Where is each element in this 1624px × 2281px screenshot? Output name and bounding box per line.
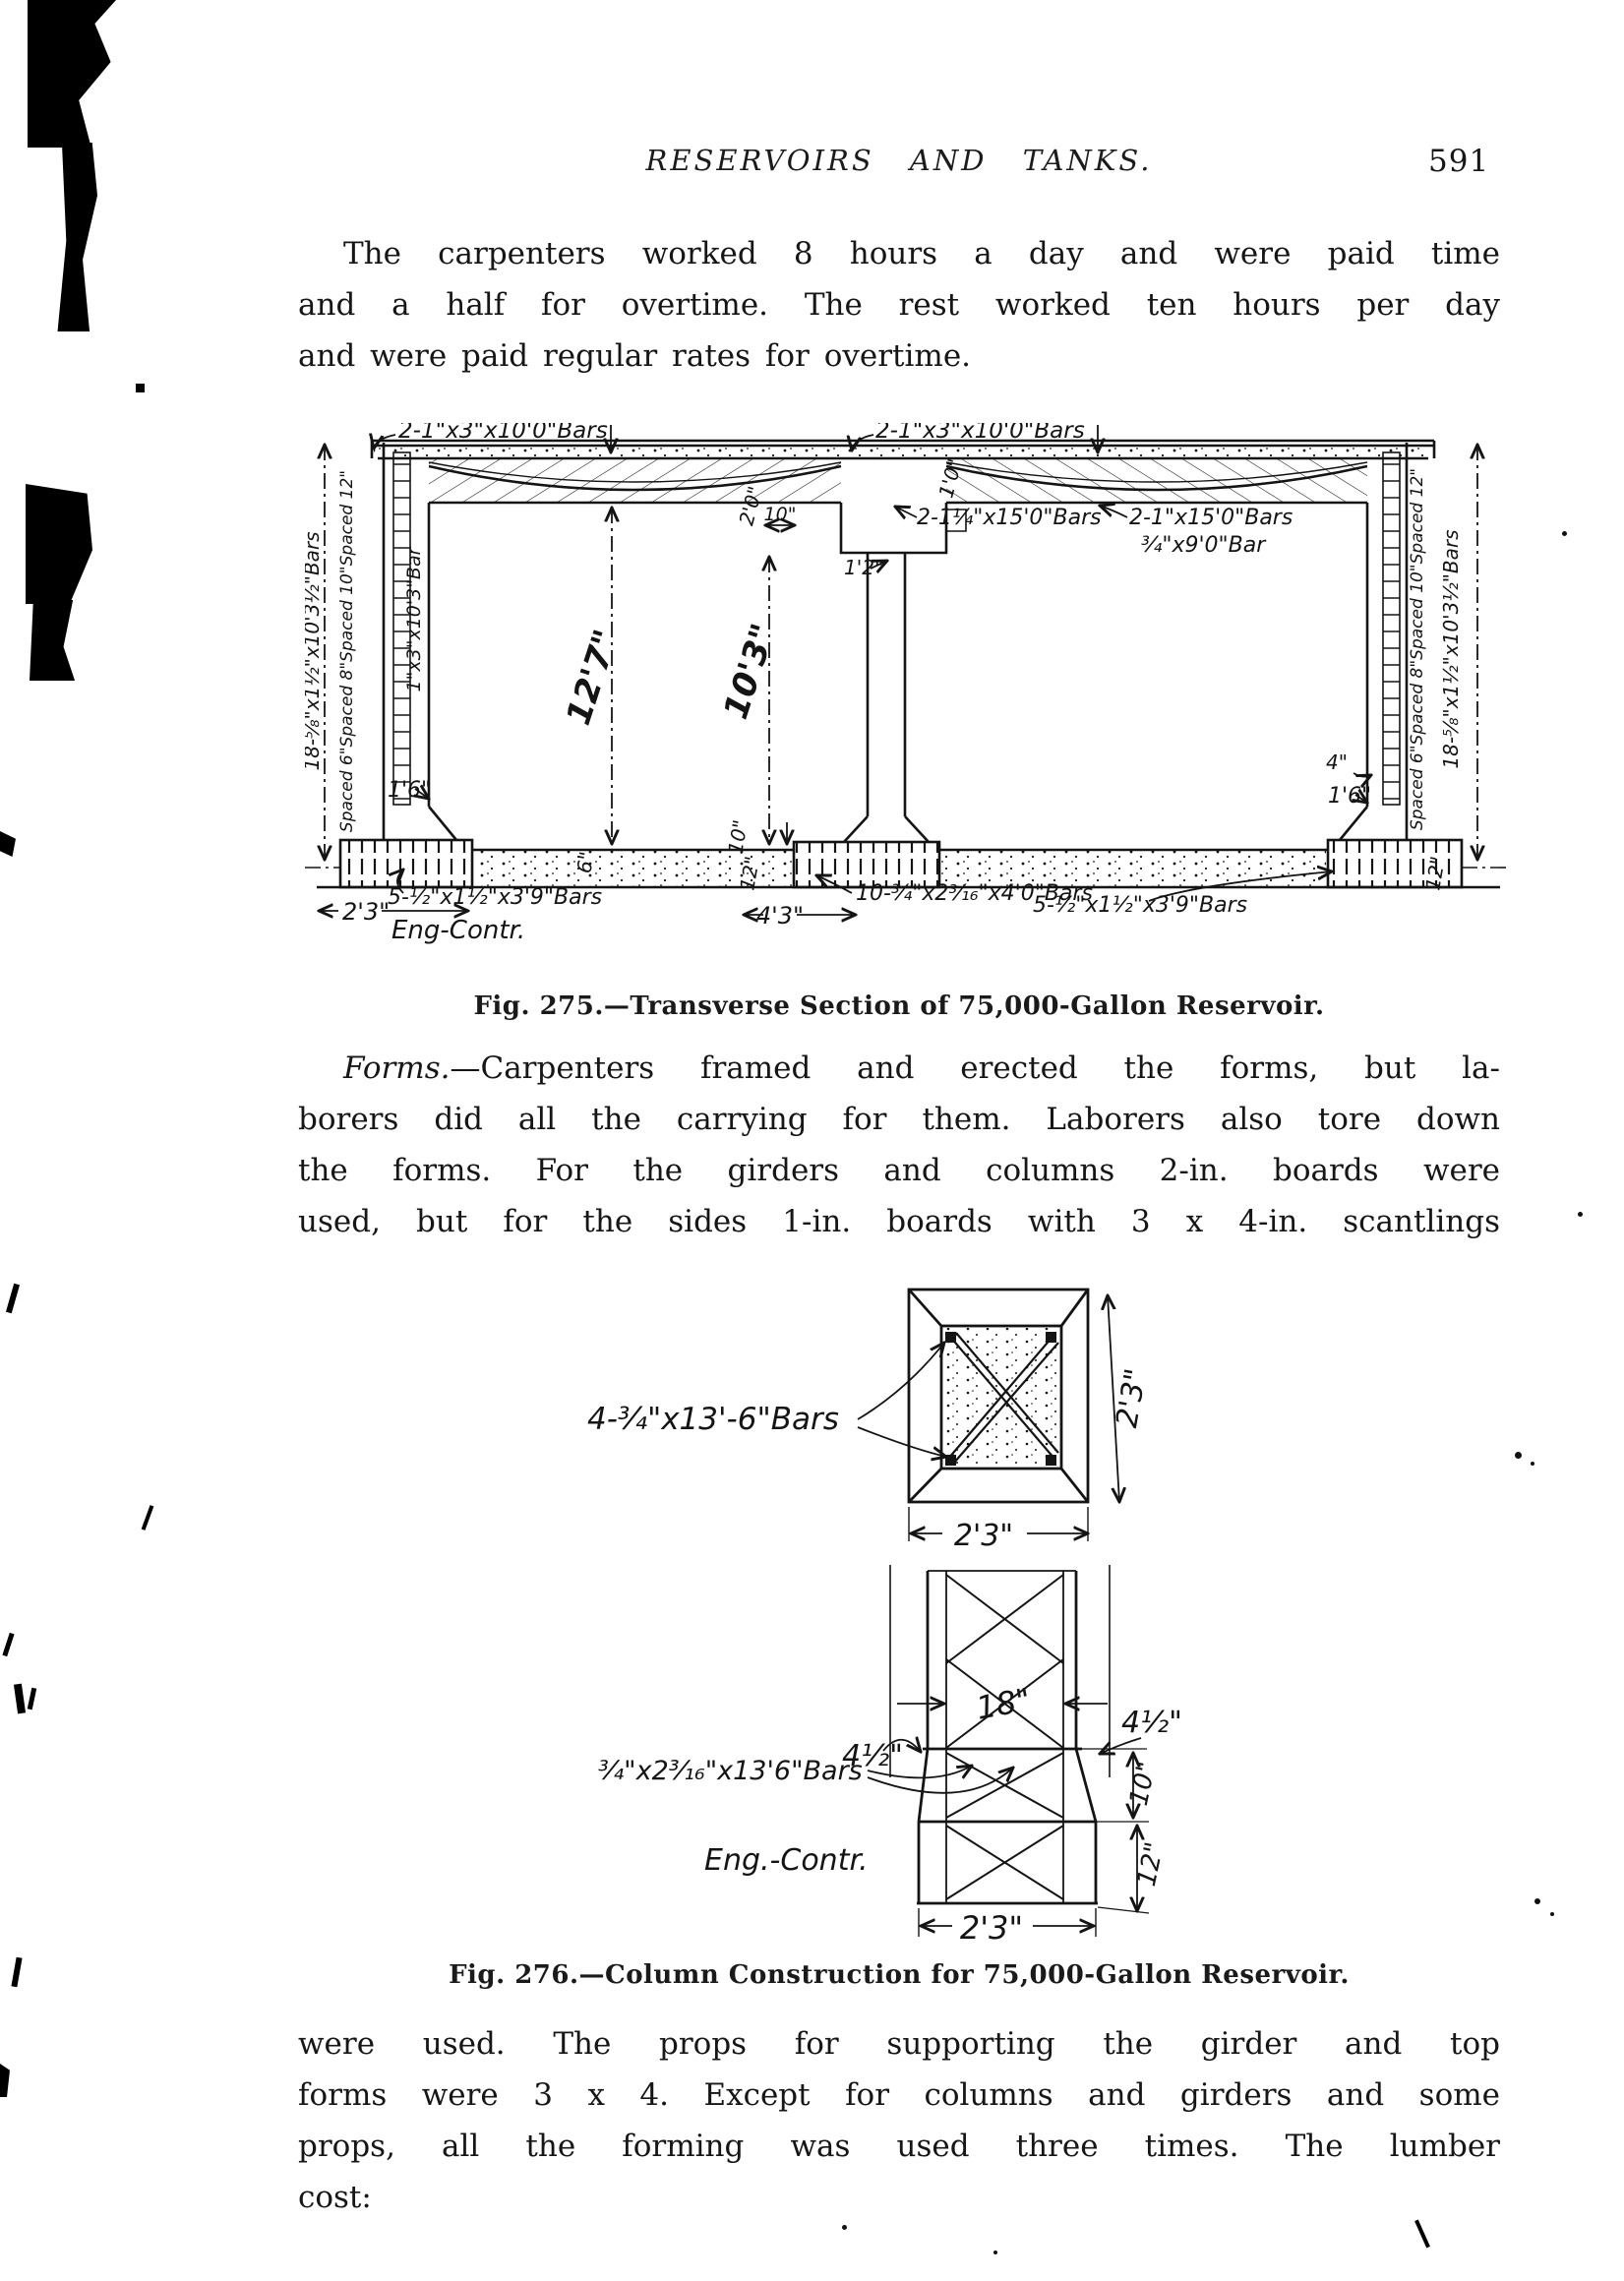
- paragraph-2: Forms.—Carpenters framed and erected the…: [298, 1043, 1500, 1247]
- scan-artifact-mark: [28, 1688, 36, 1711]
- paragraph-line: Forms.—Carpenters framed and erected the…: [298, 1043, 1500, 1094]
- scan-artifact-mark: [14, 1684, 26, 1714]
- dim-splay: 10": [1124, 1759, 1163, 1808]
- scan-speck: [1515, 1452, 1522, 1459]
- dim-offset-right: 4½": [1121, 1706, 1182, 1740]
- paragraph-line: were used. The props for supporting the …: [298, 2018, 1500, 2070]
- paragraph-3: were used. The props for supporting the …: [298, 2018, 1500, 2223]
- label-wall-bars-left: 18-⅝"x1½"x10'3½"Bars: [305, 531, 324, 770]
- label-girder-bars-right: 2-1"x15'0"Bars: [1129, 506, 1293, 530]
- fig276-column-construction-drawing: 4-¾"x13'-6"Bars 2'3" 2'3" 18" 4½" 4½" ¾"…: [551, 1274, 1239, 1957]
- scan-artifact-mark: [142, 1505, 154, 1531]
- paragraph-line: cost:: [298, 2172, 1500, 2223]
- paragraph-line: and a half for overtime. The rest worked…: [298, 279, 1500, 330]
- page-number: 591: [1428, 144, 1489, 179]
- label-top-bars-left: 2-1"x3"x10'0"Bars: [398, 423, 608, 444]
- scanned-book-page: { "header": { "title": "RESERVOIRS AND T…: [0, 0, 1624, 2281]
- dim-section-right: 2'3": [1110, 1366, 1154, 1430]
- label-footing-bars-left: 5-½"x1½"x3'9"Bars: [388, 885, 602, 910]
- dim-section-bottom: 2'3": [954, 1519, 1013, 1553]
- scan-artifact-mark: [0, 2064, 10, 2097]
- dim-base-width: 2'3": [960, 1909, 1023, 1947]
- paragraph-line: used, but for the sides 1-in. boards wit…: [298, 1196, 1500, 1247]
- scan-artifact-mark: [2, 1633, 14, 1656]
- dim-wall-right: 1'6": [1328, 784, 1371, 809]
- dim-right-small: 4": [1326, 750, 1348, 774]
- scan-artifact-mark: [11, 1957, 22, 1988]
- paragraph-1: The carpenters worked 8 hours a day and …: [298, 228, 1500, 382]
- dim-girder: 1'2": [844, 556, 883, 579]
- dim-col-width: 18": [973, 1681, 1033, 1727]
- paragraph-line: borers did all the carrying for them. La…: [298, 1094, 1500, 1145]
- column-cross-section: [909, 1290, 1088, 1502]
- label-top-bars-right: 2-1"x3"x10'0"Bars: [875, 423, 1085, 444]
- dim-bay-left: 12'7": [559, 625, 627, 730]
- scan-speck: [1578, 1212, 1583, 1217]
- scan-artifact-blob: [26, 484, 92, 604]
- paragraph-line: The carpenters worked 8 hours a day and …: [298, 228, 1500, 279]
- dim-wall-left: 1'6": [388, 778, 431, 803]
- label-footing-bars-right: 5-½"x1½"x3'9"Bars: [1033, 893, 1247, 918]
- fig276-labels: 4-¾"x13'-6"Bars 2'3" 2'3" 18" 4½" 4½" ¾"…: [587, 1366, 1182, 1947]
- scan-artifact-blob: [30, 600, 77, 681]
- label-girder-bar-small: ¾"x9'0"Bar: [1141, 533, 1267, 558]
- dim-slab: 6": [571, 850, 598, 875]
- label-wall-bars-right: 18-⅝"x1½"x10'3½"Bars: [1439, 529, 1463, 768]
- engineer-credit: Eng.-Contr.: [704, 1843, 869, 1878]
- label-section-bars: 4-¾"x13'-6"Bars: [587, 1402, 839, 1437]
- paragraph-lead-rest: —Carpenters framed and erected the forms…: [450, 1050, 1500, 1086]
- label-wall-spacing-left: Spaced 6"Spaced 8"Spaced 10"Spaced 12": [337, 470, 357, 832]
- figure-caption-276: Fig. 276.—Column Construction for 75,000…: [298, 1960, 1500, 1990]
- scan-speck: [1562, 531, 1567, 536]
- reservoir-structure: [305, 441, 1510, 887]
- label-wall-bar-inner: 1"x3"x10'3"Bar: [403, 546, 425, 691]
- dim-footing-center-width: 4'3": [756, 902, 804, 930]
- label-girder-bars-left: 2-1¼"x15'0"Bars: [917, 506, 1102, 530]
- figure-caption-275: Fig. 275.—Transverse Section of 75,000-G…: [298, 991, 1500, 1021]
- label-wall-spacing-right: Spaced 6"Spaced 8"Spaced 10"Spaced 12": [1408, 468, 1427, 830]
- paragraph-line: forms were 3 x 4. Except for columns and…: [298, 2070, 1500, 2121]
- scan-artifact-streak: [54, 143, 97, 331]
- scan-artifact-mark: [0, 831, 16, 857]
- scan-speck: [993, 2251, 997, 2254]
- running-title: RESERVOIRS AND TANKS.: [298, 144, 1500, 177]
- paragraph-line: props, all the forming was used three ti…: [298, 2121, 1500, 2172]
- dim-bay-right: 10'3": [716, 619, 784, 724]
- scan-speck: [1534, 1898, 1540, 1904]
- paragraph-lead-italic: Forms.: [343, 1050, 450, 1086]
- paragraph-line: the forms. For the girders and columns 2…: [298, 1145, 1500, 1196]
- scan-artifact-mark: [6, 1284, 20, 1313]
- paragraph-line: and were paid regular rates for overtime…: [298, 330, 1500, 382]
- engineer-credit: Eng-Contr.: [391, 916, 525, 945]
- scan-speck: [1531, 1462, 1534, 1466]
- scan-artifact-blob: [28, 0, 116, 148]
- scan-speck: [1550, 1912, 1554, 1916]
- fig275-transverse-section-drawing: 2-1"x3"x10'0"Bars 2-1"x3"x10'0"Bars 2-1¼…: [305, 423, 1510, 984]
- dim-step: 10": [764, 504, 797, 525]
- dim-footing-left-width: 2'3": [342, 898, 390, 926]
- scan-speck: [842, 2225, 847, 2230]
- scan-artifact-mark: [136, 384, 145, 392]
- label-splay-bars: ¾"x2³⁄₁₆"x13'6"Bars: [598, 1756, 863, 1786]
- column-elevation: [917, 1571, 1098, 1903]
- scan-artifact-mark: [1414, 2219, 1430, 2248]
